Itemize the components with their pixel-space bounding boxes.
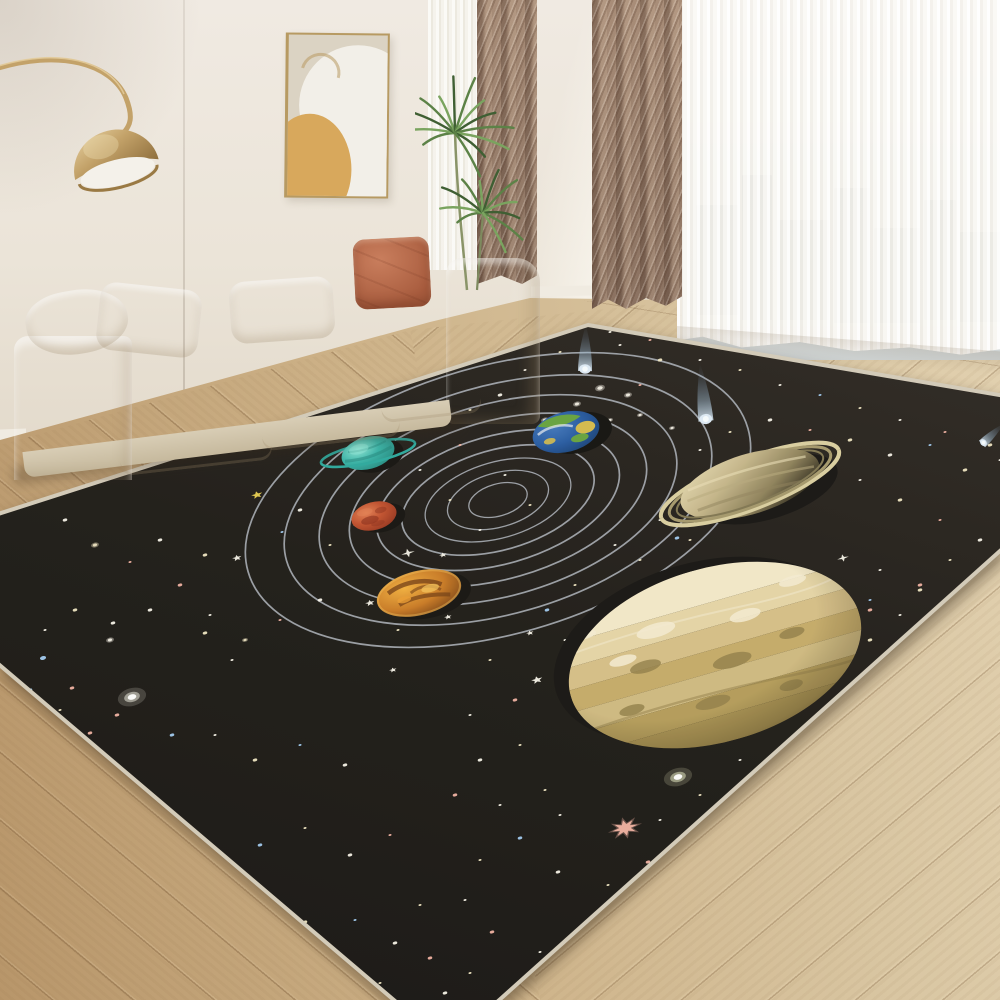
throw-pillow-terracotta — [352, 236, 432, 310]
star — [44, 713, 49, 717]
throw-pillow-white — [228, 275, 336, 344]
throw-pillow-white — [95, 281, 204, 359]
living-room-product-photo — [0, 0, 1000, 1000]
star — [585, 926, 590, 930]
star — [120, 777, 129, 784]
star — [558, 329, 562, 332]
star — [958, 599, 962, 602]
star — [255, 896, 260, 900]
sofa-seat-cushion — [111, 364, 273, 477]
star — [208, 887, 212, 890]
sofa-seat-cushion — [374, 331, 483, 424]
star — [83, 749, 87, 752]
sofa-armrest-left — [14, 336, 132, 480]
